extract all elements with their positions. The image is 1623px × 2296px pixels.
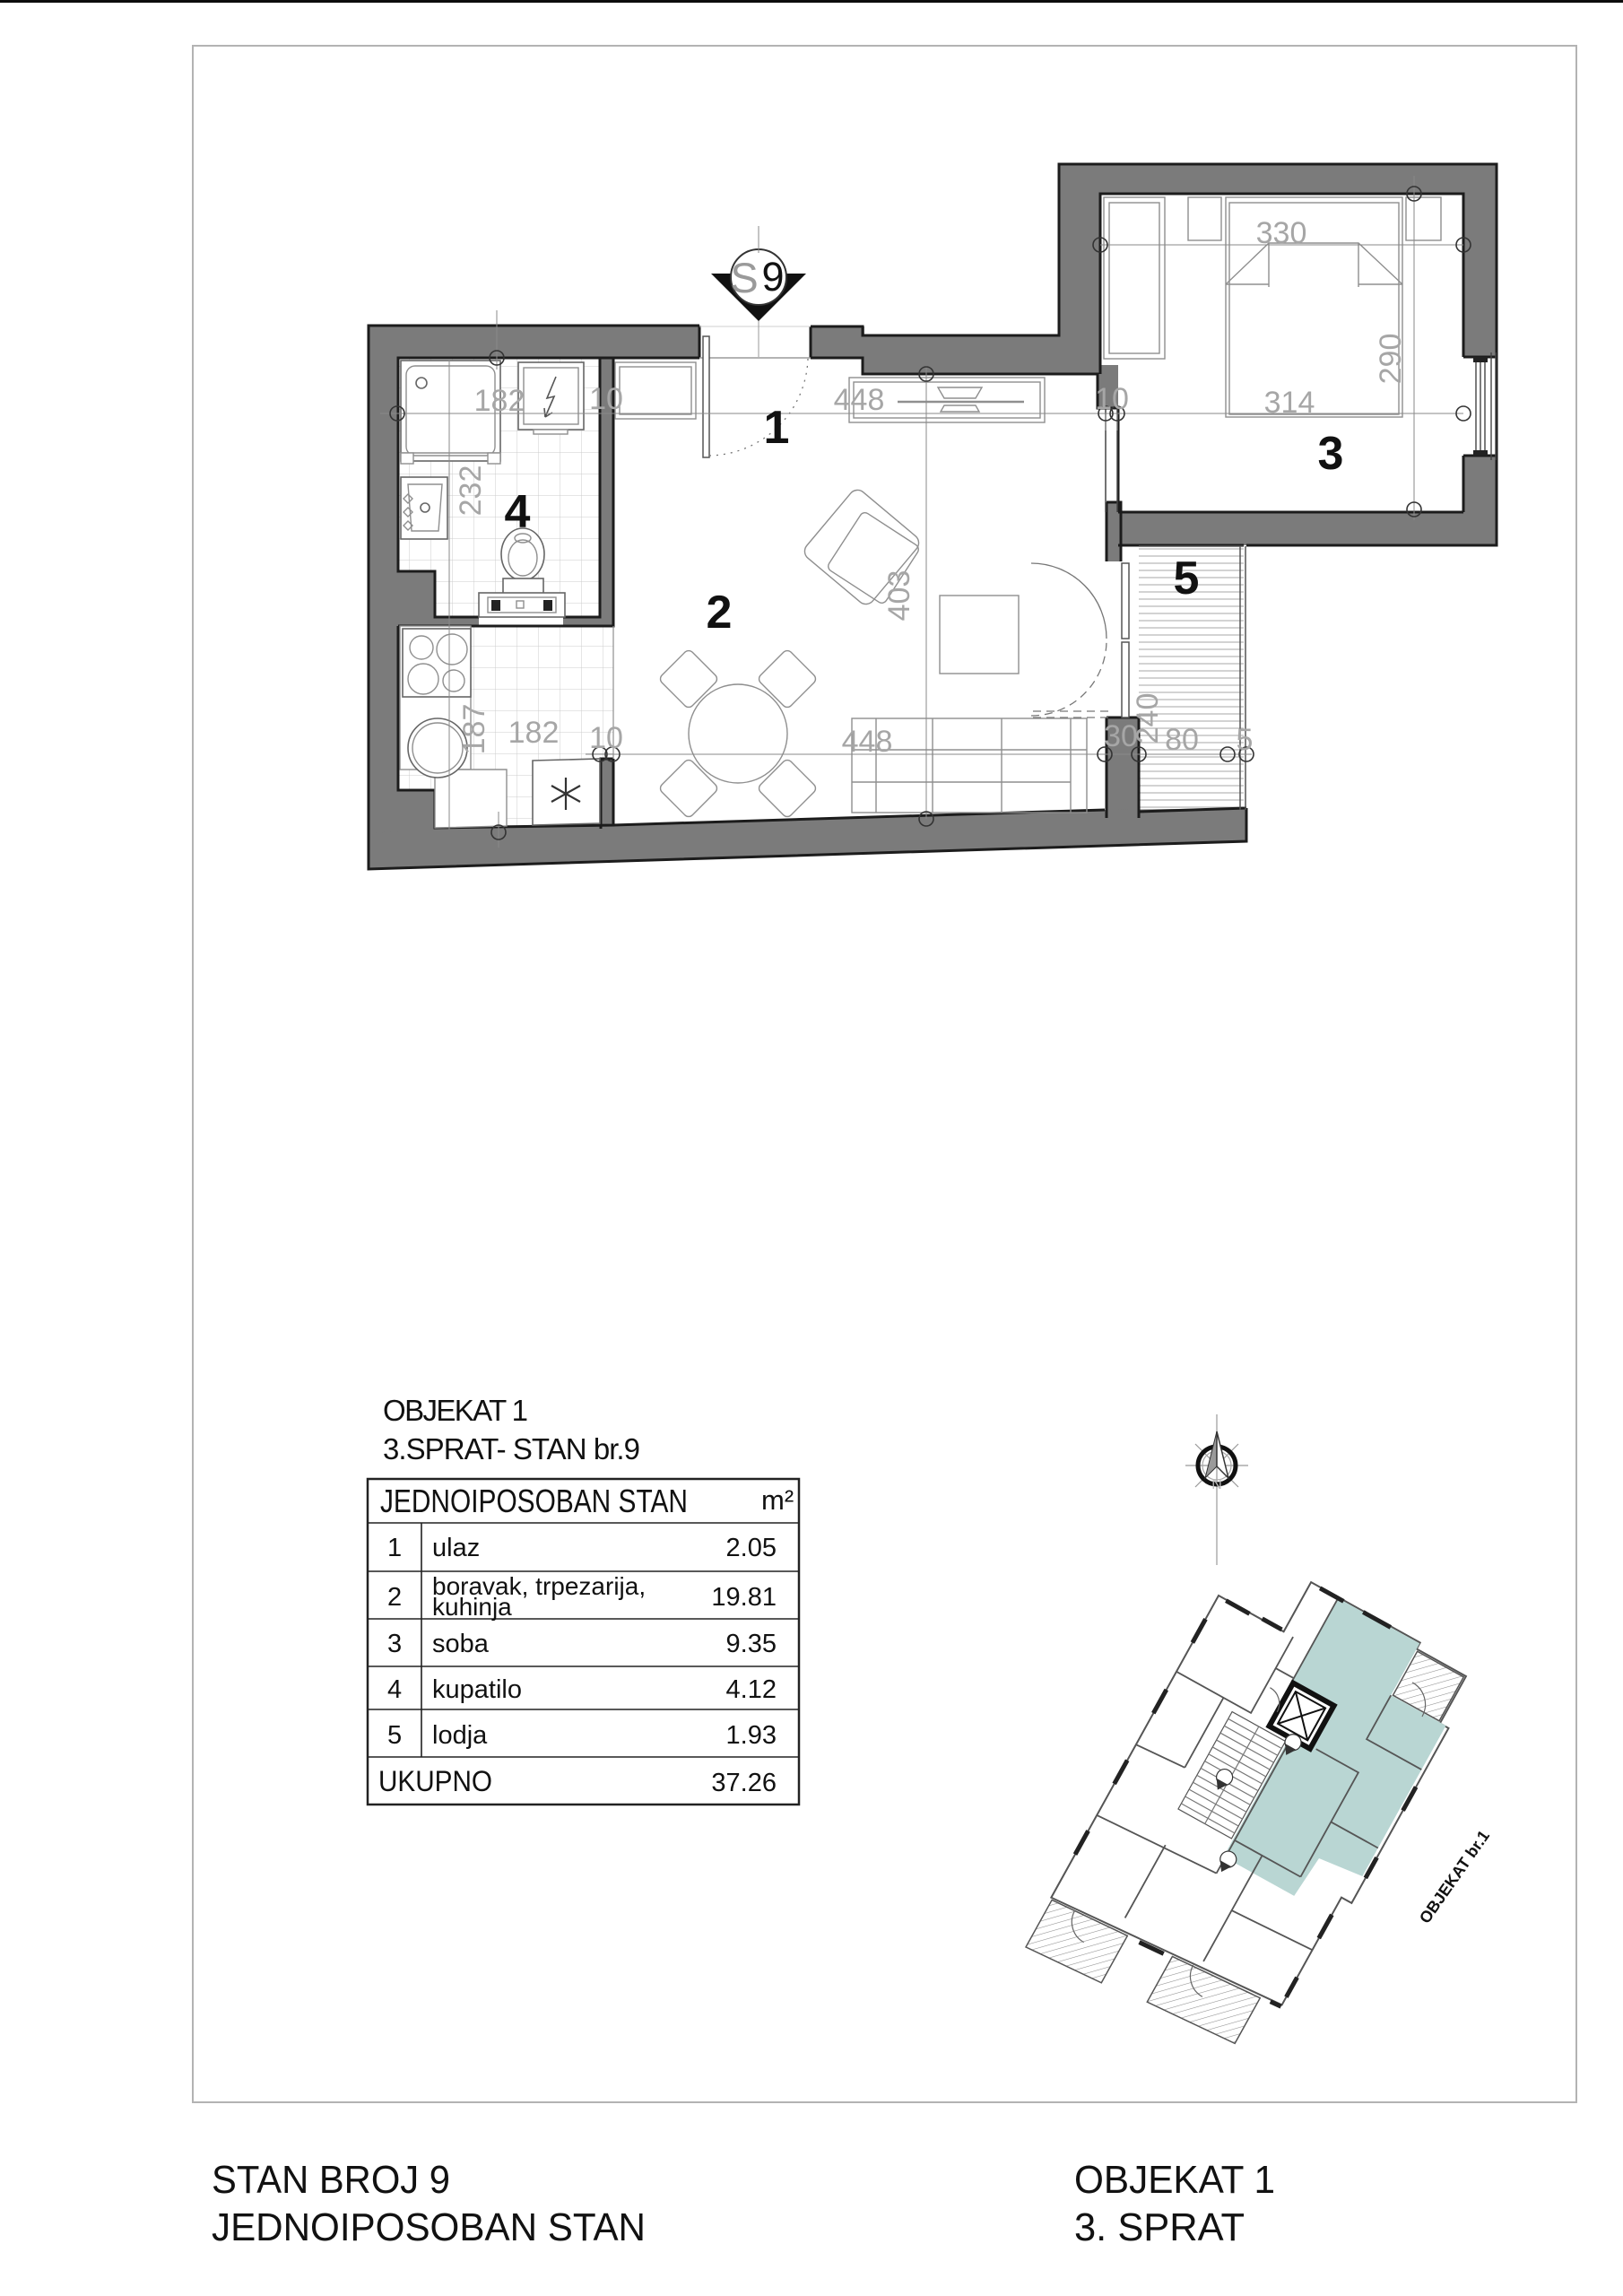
svg-text:5: 5 — [387, 1721, 402, 1750]
svg-text:ulaz: ulaz — [432, 1534, 480, 1562]
svg-text:soba: soba — [432, 1630, 490, 1658]
svg-text:2.05: 2.05 — [726, 1534, 777, 1562]
svg-text:5: 5 — [1237, 723, 1254, 757]
svg-text:403: 403 — [882, 570, 916, 622]
svg-text:3: 3 — [387, 1630, 402, 1658]
svg-text:1: 1 — [764, 402, 790, 454]
svg-text:448: 448 — [842, 725, 893, 759]
svg-text:N: N — [1211, 1477, 1222, 1492]
svg-text:10: 10 — [589, 382, 623, 416]
svg-text:37.26: 37.26 — [711, 1769, 777, 1797]
svg-text:3: 3 — [1318, 428, 1344, 480]
svg-text:lodja: lodja — [432, 1721, 488, 1750]
svg-text:4: 4 — [387, 1675, 402, 1704]
svg-text:STAN BROJ 9: STAN BROJ 9 — [212, 2158, 450, 2202]
svg-text:JEDNOIPOSOBAN STAN: JEDNOIPOSOBAN STAN — [212, 2205, 646, 2249]
svg-text:4.12: 4.12 — [726, 1675, 777, 1704]
svg-text:OBJEKAT 1: OBJEKAT 1 — [383, 1394, 528, 1427]
svg-text:182: 182 — [474, 384, 525, 418]
svg-text:187: 187 — [457, 704, 491, 755]
svg-text:JEDNOIPOSOBAN STAN: JEDNOIPOSOBAN STAN — [380, 1483, 688, 1519]
svg-text:3.SPRAT- STAN br.9: 3.SPRAT- STAN br.9 — [383, 1432, 640, 1465]
svg-text:3. SPRAT: 3. SPRAT — [1074, 2205, 1245, 2249]
svg-text:m²: m² — [761, 1484, 794, 1516]
svg-text:80: 80 — [1165, 723, 1199, 757]
svg-text:240: 240 — [1131, 693, 1165, 744]
svg-text:2: 2 — [707, 587, 733, 639]
svg-text:kupatilo: kupatilo — [432, 1675, 522, 1704]
svg-text:290: 290 — [1374, 334, 1408, 385]
svg-text:kuhinja: kuhinja — [432, 1593, 512, 1621]
svg-text:2: 2 — [387, 1583, 402, 1612]
svg-text:S: S — [730, 254, 758, 301]
svg-text:9.35: 9.35 — [726, 1630, 777, 1658]
svg-text:10: 10 — [589, 721, 623, 755]
svg-text:1: 1 — [387, 1534, 402, 1562]
svg-text:182: 182 — [508, 716, 560, 750]
svg-text:UKUPNO: UKUPNO — [378, 1765, 492, 1797]
svg-text:330: 330 — [1256, 216, 1307, 250]
svg-text:19.81: 19.81 — [711, 1583, 777, 1612]
svg-text:OBJEKAT 1: OBJEKAT 1 — [1074, 2158, 1275, 2202]
svg-text:314: 314 — [1264, 386, 1315, 420]
svg-text:1.93: 1.93 — [726, 1721, 777, 1750]
svg-text:9: 9 — [761, 254, 784, 300]
svg-text:4: 4 — [505, 486, 531, 538]
svg-text:5: 5 — [1174, 552, 1200, 604]
svg-text:232: 232 — [454, 465, 488, 517]
svg-text:10: 10 — [1095, 382, 1129, 416]
svg-text:448: 448 — [834, 383, 885, 417]
